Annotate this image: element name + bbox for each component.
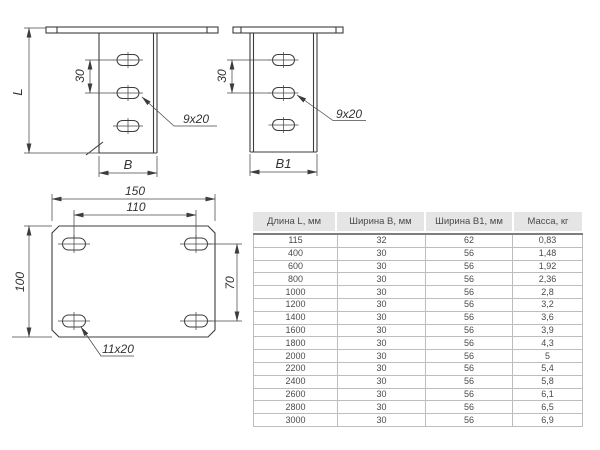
dim-label-hole-spacing-horizontal: 110 <box>126 200 145 214</box>
table-row: 260030566,1 <box>254 388 583 401</box>
table-row: 140030563,6 <box>254 311 583 324</box>
table-cell: 2800 <box>254 401 338 414</box>
dim-label-hole-spacing: 30 <box>215 69 229 83</box>
table-cell: 5 <box>513 350 583 363</box>
table-row: 120030563,2 <box>254 298 583 311</box>
slot-hole <box>269 52 299 68</box>
table-cell: 56 <box>426 311 513 324</box>
top-plate-end-caps <box>57 27 207 33</box>
table-row: 300030566,9 <box>254 414 583 427</box>
table-body-grid: 11532620,8340030561,4860030561,928003056… <box>253 233 583 427</box>
table-row: 200030565 <box>254 350 583 363</box>
slot-hole <box>58 312 90 330</box>
dim-label-length: L <box>10 88 25 95</box>
table-row: 180030564,3 <box>254 337 583 350</box>
table-cell: 56 <box>426 375 513 388</box>
table-cell: 5,8 <box>513 375 583 388</box>
table-cell: 56 <box>426 362 513 375</box>
table-cell: 30 <box>338 375 426 388</box>
dimension-width-b: B <box>99 156 157 177</box>
drawing-base-plate: 150 110 100 70 11x20 <box>12 184 242 356</box>
table-cell: 2400 <box>254 375 338 388</box>
table-cell: 5,4 <box>513 362 583 375</box>
top-plate-end-caps <box>241 27 336 33</box>
table-cell: 56 <box>426 414 513 427</box>
table-cell: 4,3 <box>513 337 583 350</box>
table-cell: 2,36 <box>513 273 583 286</box>
slot-hole <box>180 312 212 330</box>
dimension-hole-spacing-vertical: 70 <box>208 244 242 321</box>
table-cell: 30 <box>338 362 426 375</box>
table-cell: 32 <box>338 234 426 247</box>
plate-outline <box>52 226 215 337</box>
drawing-bracket-front: L 30 B 9x20 <box>10 27 218 177</box>
table-row: 11532620,83 <box>254 234 583 247</box>
table-cell: 56 <box>426 247 513 260</box>
dim-label-width-b: B <box>124 157 133 172</box>
table-row: 160030563,9 <box>254 324 583 337</box>
dimension-hole-spacing-horizontal: 110 <box>74 200 196 239</box>
table-cell: 400 <box>254 247 338 260</box>
slot-hole <box>113 85 143 101</box>
table-cell: 0,83 <box>513 234 583 247</box>
table-cell: 56 <box>426 298 513 311</box>
table-cell: 56 <box>426 324 513 337</box>
table-cell: 1,92 <box>513 260 583 273</box>
table-cell: 30 <box>338 247 426 260</box>
table-header-row: Длина L, мм Ширина B, мм Ширина B1, мм М… <box>253 212 582 231</box>
table-cell: 6,9 <box>513 414 583 427</box>
slot-callout-label: 9x20 <box>336 107 362 121</box>
table-cell: 600 <box>254 260 338 273</box>
slot-callout: 9x20 <box>297 95 366 121</box>
table-cell: 6,5 <box>513 401 583 414</box>
table-cell: 30 <box>338 260 426 273</box>
table-cell: 56 <box>426 337 513 350</box>
table-cell: 1600 <box>254 324 338 337</box>
slot-hole <box>269 117 299 133</box>
dim-label-hole-spacing: 30 <box>73 69 87 83</box>
column-header-length: Длина L, мм <box>253 212 335 231</box>
dim-label-overall-width: 150 <box>125 184 145 198</box>
table-cell: 1800 <box>254 337 338 350</box>
column-header-width-b: Ширина B, мм <box>337 212 424 231</box>
table-row: 240030565,8 <box>254 375 583 388</box>
slot-callout-label: 11x20 <box>102 342 134 356</box>
dimension-overall-height: 100 <box>12 226 52 337</box>
slot-callout: 11x20 <box>81 327 134 356</box>
top-plate <box>233 27 343 33</box>
table-cell: 3,2 <box>513 298 583 311</box>
top-plate <box>46 27 218 33</box>
dimension-width-b1: B1 <box>250 154 317 176</box>
slot-hole <box>113 52 143 68</box>
table-row: 40030561,48 <box>254 247 583 260</box>
table-row: 100030562,8 <box>254 286 583 299</box>
table-cell: 56 <box>426 388 513 401</box>
table-body: 11532620,8340030561,4860030561,928003056… <box>254 234 583 426</box>
table-row: 80030562,36 <box>254 273 583 286</box>
table-cell: 3,9 <box>513 324 583 337</box>
table-row: 220030565,4 <box>254 362 583 375</box>
table-cell: 30 <box>338 350 426 363</box>
table-cell: 6,1 <box>513 388 583 401</box>
table-cell: 30 <box>338 337 426 350</box>
slot-hole <box>113 118 143 134</box>
table-cell: 2,8 <box>513 286 583 299</box>
table-cell: 2600 <box>254 388 338 401</box>
table-cell: 800 <box>254 273 338 286</box>
spec-table: Длина L, мм Ширина B, мм Ширина B1, мм М… <box>253 212 582 427</box>
dim-label-hole-spacing-vertical: 70 <box>223 276 237 290</box>
table-cell: 30 <box>338 298 426 311</box>
table-cell: 1200 <box>254 298 338 311</box>
table-cell: 56 <box>426 401 513 414</box>
table-cell: 56 <box>426 350 513 363</box>
dim-label-overall-height: 100 <box>13 272 27 292</box>
table-cell: 2200 <box>254 362 338 375</box>
dimension-hole-spacing: 30 <box>215 60 270 93</box>
dimension-hole-spacing: 30 <box>73 60 114 93</box>
drawing-bracket-side: 30 B1 9x20 <box>215 27 366 176</box>
table-cell: 30 <box>338 311 426 324</box>
table-cell: 56 <box>426 260 513 273</box>
table-cell: 56 <box>426 286 513 299</box>
table-row: 280030566,5 <box>254 401 583 414</box>
table-cell: 3000 <box>254 414 338 427</box>
table-cell: 1000 <box>254 286 338 299</box>
table-cell: 2000 <box>254 350 338 363</box>
table-cell: 115 <box>254 234 338 247</box>
slot-hole <box>269 85 299 101</box>
table-cell: 62 <box>426 234 513 247</box>
slot-callout-label: 9x20 <box>183 112 209 126</box>
table-cell: 30 <box>338 388 426 401</box>
column-header-mass: Масса, кг <box>514 212 582 231</box>
table-cell: 3,6 <box>513 311 583 324</box>
table-cell: 30 <box>338 286 426 299</box>
column-profile <box>86 33 157 155</box>
table-cell: 1,48 <box>513 247 583 260</box>
column-header-width-b1: Ширина B1, мм <box>426 212 512 231</box>
page: L 30 B 9x20 <box>0 0 600 450</box>
table-cell: 30 <box>338 401 426 414</box>
table-cell: 30 <box>338 414 426 427</box>
table-cell: 30 <box>338 324 426 337</box>
table-cell: 1400 <box>254 311 338 324</box>
table-cell: 30 <box>338 273 426 286</box>
table-cell: 56 <box>426 273 513 286</box>
table-row: 60030561,92 <box>254 260 583 273</box>
dim-label-width-b1: B1 <box>276 156 292 171</box>
dimension-length: L <box>10 28 99 153</box>
